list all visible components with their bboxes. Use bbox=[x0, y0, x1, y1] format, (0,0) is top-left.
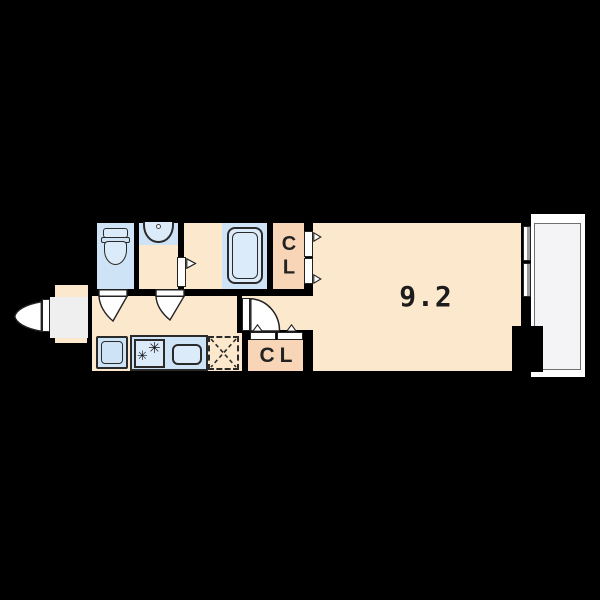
wall-left bbox=[88, 215, 97, 296]
stove-burner-icon: ✳ bbox=[137, 349, 148, 364]
entry-door-swing-icon bbox=[14, 301, 42, 332]
wall-bottom bbox=[88, 371, 531, 379]
entry-floor bbox=[50, 297, 88, 338]
refrigerator-space-icon bbox=[96, 336, 128, 369]
stove-icon: ✳ ✳ bbox=[134, 339, 165, 368]
bathtub-icon bbox=[227, 227, 263, 284]
washroom-door-swing-icon bbox=[155, 289, 186, 323]
closet-top-door-arrow-icon bbox=[313, 232, 322, 242]
wall-toilet-washroom bbox=[134, 223, 139, 289]
floor-plan: ✳ ✳ bbox=[0, 0, 600, 600]
toilet-door-swing-icon bbox=[98, 289, 129, 324]
pillar bbox=[512, 326, 543, 372]
washer-space-icon bbox=[208, 336, 239, 370]
bathroom-door-arrow-icon bbox=[186, 258, 197, 269]
closet-top-door-arrow-icon bbox=[313, 274, 322, 284]
washer-cross-icon bbox=[210, 338, 237, 368]
sliding-window-pane bbox=[523, 263, 531, 297]
main-door-leaf bbox=[242, 298, 250, 331]
closet-top-door-panel bbox=[304, 258, 313, 284]
closet-top-label: CL bbox=[273, 227, 305, 287]
closet-bottom-door-arrow-icon bbox=[252, 324, 263, 332]
refrigerator-inner bbox=[101, 341, 123, 364]
entry-alcove-bottom bbox=[55, 338, 87, 343]
sliding-window-pane bbox=[523, 226, 531, 261]
closet-top-door-panel bbox=[304, 231, 313, 257]
closet-bottom-door-arrow-icon bbox=[286, 324, 297, 332]
sink-faucet-icon bbox=[156, 224, 161, 229]
closet-bottom-label: CL bbox=[248, 342, 305, 370]
closet-bottom-door-panel bbox=[277, 332, 303, 340]
kitchen-sink-icon bbox=[172, 344, 202, 365]
bathroom-door-icon bbox=[177, 257, 186, 287]
room-size-label: 9.2 bbox=[396, 280, 456, 312]
bathtub-rim bbox=[232, 232, 258, 279]
entry-door-leaf bbox=[42, 299, 50, 332]
stove-burner-icon: ✳ bbox=[148, 339, 161, 357]
entry-alcove-top bbox=[55, 285, 88, 297]
wall-closet-cap-top bbox=[304, 215, 313, 231]
closet-bottom-door-panel bbox=[250, 332, 276, 340]
